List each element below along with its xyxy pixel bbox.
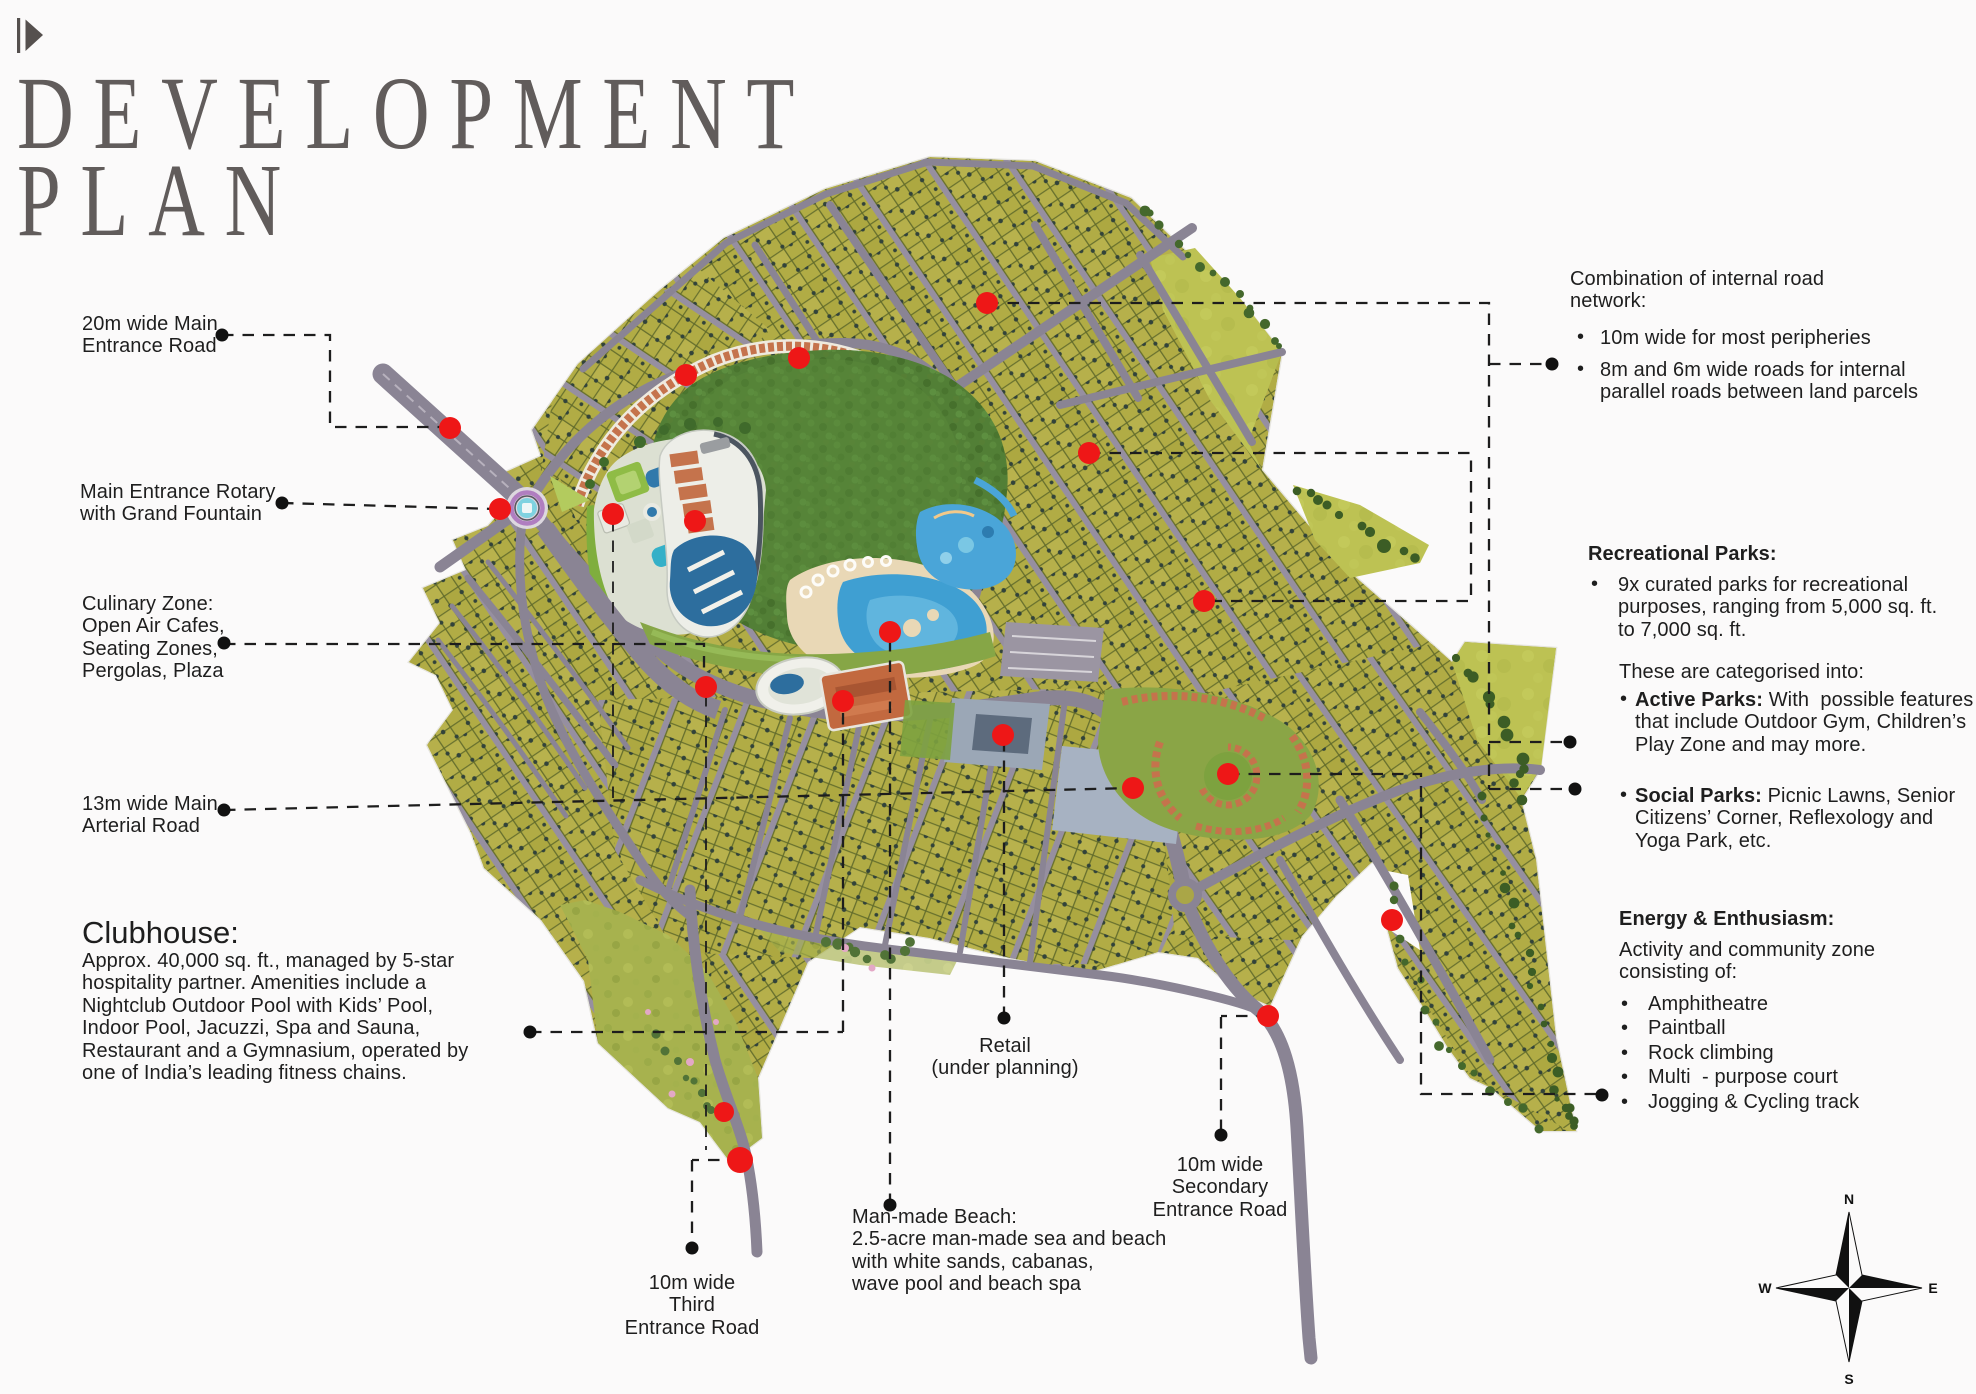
svg-text:N: N [1844, 1191, 1854, 1207]
svg-text:S: S [1844, 1371, 1853, 1387]
svg-text:E: E [1928, 1280, 1937, 1296]
svg-text:W: W [1758, 1280, 1772, 1296]
